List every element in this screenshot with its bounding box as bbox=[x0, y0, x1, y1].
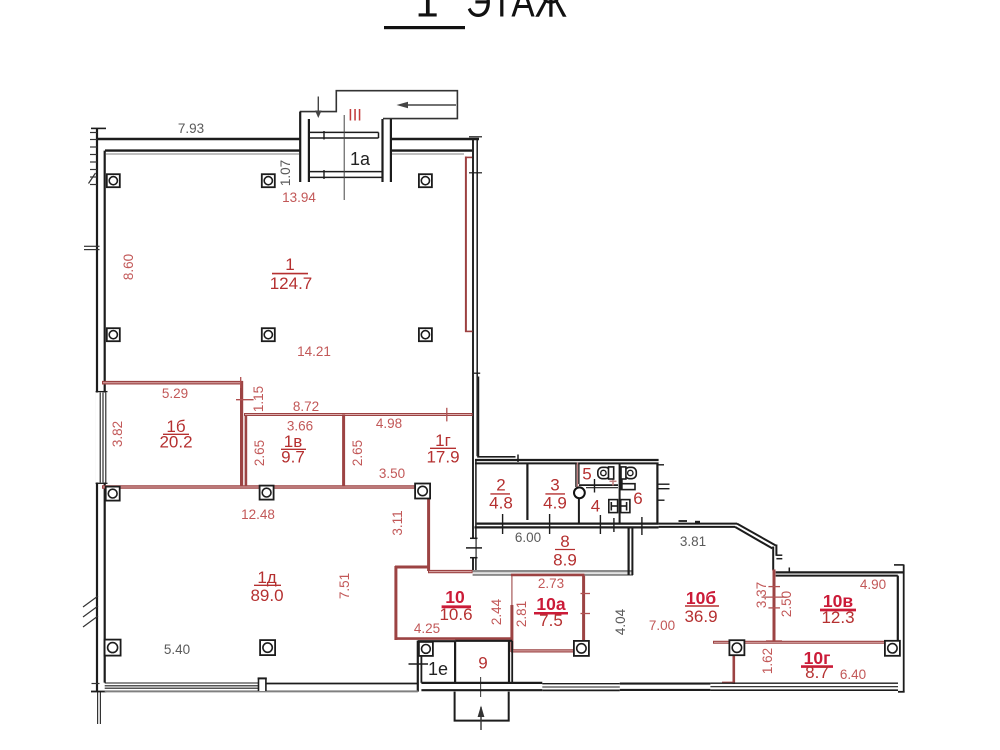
svg-text:2.50: 2.50 bbox=[779, 591, 794, 617]
svg-text:1: 1 bbox=[285, 255, 294, 274]
svg-text:13.94: 13.94 bbox=[282, 190, 316, 205]
svg-text:1е: 1е bbox=[428, 659, 448, 679]
svg-text:III: III bbox=[348, 107, 362, 125]
svg-text:4.04: 4.04 bbox=[613, 608, 628, 635]
svg-text:89.0: 89.0 bbox=[250, 586, 283, 605]
svg-text:1.62: 1.62 bbox=[760, 648, 775, 674]
svg-text:8.7: 8.7 bbox=[805, 663, 829, 682]
svg-text:10б: 10б bbox=[686, 588, 716, 608]
svg-text:7.93: 7.93 bbox=[178, 121, 204, 136]
svg-text:12.3: 12.3 bbox=[821, 608, 854, 627]
svg-text:4.90: 4.90 bbox=[860, 577, 886, 592]
svg-text:3.11: 3.11 bbox=[390, 510, 405, 535]
svg-text:8.9: 8.9 bbox=[553, 551, 577, 570]
svg-text:7.51: 7.51 bbox=[337, 573, 352, 599]
svg-text:1: 1 bbox=[415, 0, 438, 26]
svg-text:7.00: 7.00 bbox=[649, 618, 675, 633]
svg-text:17.9: 17.9 bbox=[426, 448, 459, 467]
svg-text:3.50: 3.50 bbox=[379, 466, 405, 481]
svg-text:8.60: 8.60 bbox=[121, 254, 136, 280]
svg-text:4: 4 bbox=[591, 497, 600, 516]
svg-text:2: 2 bbox=[496, 475, 505, 494]
svg-text:4.98: 4.98 bbox=[376, 416, 402, 431]
svg-text:8.72: 8.72 bbox=[293, 399, 319, 414]
svg-text:2.73: 2.73 bbox=[538, 576, 564, 591]
svg-text:2.65: 2.65 bbox=[252, 440, 267, 466]
svg-text:3: 3 bbox=[550, 475, 559, 494]
svg-text:20.2: 20.2 bbox=[159, 433, 192, 452]
svg-text:2.81: 2.81 bbox=[514, 601, 529, 627]
svg-text:2.65: 2.65 bbox=[350, 440, 365, 466]
svg-text:36.9: 36.9 bbox=[684, 607, 717, 626]
svg-text:4.8: 4.8 bbox=[489, 494, 513, 513]
svg-text:6.40: 6.40 bbox=[840, 667, 866, 682]
svg-text:7.5: 7.5 bbox=[539, 611, 563, 630]
svg-text:1.15: 1.15 bbox=[251, 386, 266, 412]
svg-text:9: 9 bbox=[478, 654, 487, 673]
svg-text:2.44: 2.44 bbox=[489, 598, 504, 625]
svg-text:8: 8 bbox=[560, 532, 569, 551]
svg-text:4.25: 4.25 bbox=[414, 621, 440, 636]
svg-text:1.07: 1.07 bbox=[278, 160, 293, 186]
svg-text:6: 6 bbox=[633, 489, 642, 508]
svg-text:4.9: 4.9 bbox=[543, 494, 567, 513]
svg-text:124.7: 124.7 bbox=[270, 274, 313, 293]
svg-text:5.40: 5.40 bbox=[164, 642, 190, 657]
svg-text:14.21: 14.21 bbox=[297, 344, 331, 359]
svg-text:6.00: 6.00 bbox=[515, 530, 541, 545]
svg-text:ЭТАЖ: ЭТАЖ bbox=[466, 0, 567, 26]
svg-text:1а: 1а bbox=[350, 149, 371, 169]
svg-text:12.48: 12.48 bbox=[241, 507, 275, 522]
svg-text:3.37: 3.37 bbox=[754, 582, 769, 608]
svg-text:3.82: 3.82 bbox=[110, 421, 125, 447]
svg-text:3.81: 3.81 bbox=[680, 534, 706, 549]
svg-text:10.6: 10.6 bbox=[439, 605, 472, 624]
svg-text:3.66: 3.66 bbox=[287, 419, 313, 434]
svg-text:10: 10 bbox=[445, 587, 465, 607]
svg-text:1д: 1д bbox=[257, 568, 276, 587]
svg-text:5: 5 bbox=[582, 464, 591, 483]
svg-text:9.7: 9.7 bbox=[281, 448, 305, 467]
svg-text:5.29: 5.29 bbox=[162, 386, 188, 401]
